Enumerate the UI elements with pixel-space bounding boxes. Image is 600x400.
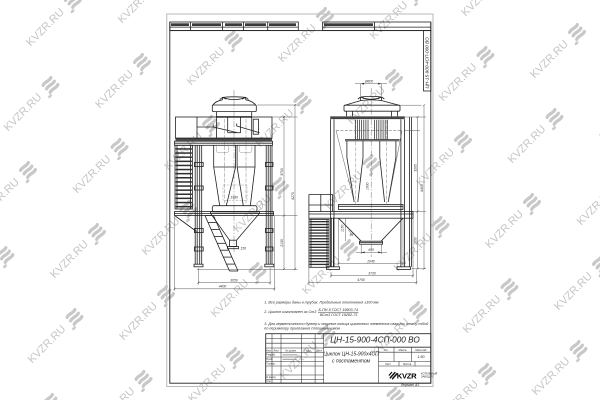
svg-text:Масса: Масса <box>399 348 407 352</box>
svg-text:Ø600: Ø600 <box>364 79 373 83</box>
svg-text:1. Все размеры даны в трубах.: 1. Все размеры даны в трубах. Предельные… <box>264 301 379 305</box>
svg-text:Б-ПН-5 ГОСТ 19903-74: Б-ПН-5 ГОСТ 19903-74 <box>319 308 358 312</box>
svg-text:3265: 3265 <box>414 164 418 172</box>
svg-text:4400: 4400 <box>219 285 227 289</box>
svg-text:Н.контр.: Н.контр. <box>266 375 276 379</box>
svg-text:ЦН-15-900-4СП-000 ВО: ЦН-15-900-4СП-000 ВО <box>330 336 420 345</box>
svg-text:Дата: Дата <box>316 348 322 352</box>
svg-text:ЦН-15-900-4СП-000 ВО: ЦН-15-900-4СП-000 ВО <box>425 37 430 89</box>
svg-text:1:50: 1:50 <box>418 355 425 359</box>
svg-text:ВСт3 ГОСТ 19282-73: ВСт3 ГОСТ 19282-73 <box>320 313 358 317</box>
svg-text:2040: 2040 <box>366 259 375 263</box>
svg-text:6270: 6270 <box>291 192 295 200</box>
svg-text:3700: 3700 <box>280 168 284 176</box>
svg-text:1150: 1150 <box>340 225 344 232</box>
svg-text:Лит.: Лит. <box>384 348 389 352</box>
svg-text:600: 600 <box>368 248 374 252</box>
svg-text:3050: 3050 <box>230 278 238 282</box>
svg-text:Листов: Листов <box>403 362 412 366</box>
svg-text:Формат А3: Формат А3 <box>401 383 420 387</box>
svg-text:Лист: Лист <box>385 362 391 366</box>
svg-text:55°: 55° <box>350 233 356 237</box>
svg-text:Лист: Лист <box>273 348 279 352</box>
svg-text:Пров.: Пров. <box>266 357 273 361</box>
svg-text:Масштаб: Масштаб <box>415 348 427 352</box>
svg-text:Циклон ЦН-15-900х4СП: Циклон ЦН-15-900х4СП <box>323 351 379 357</box>
svg-text:Утв.: Утв. <box>266 379 271 383</box>
svg-text:по периметру прилегания сплошн: по периметру прилегания сплошным швом <box>264 327 340 331</box>
svg-text:1930: 1930 <box>365 182 369 190</box>
svg-text:с постаментом: с постаментом <box>332 358 371 364</box>
svg-text:1650: 1650 <box>414 237 418 245</box>
svg-text:150: 150 <box>241 247 247 251</box>
svg-text:Изм.: Изм. <box>266 348 272 352</box>
svg-text:Т.контр.: Т.контр. <box>266 361 276 365</box>
svg-text:2135: 2135 <box>280 239 284 248</box>
svg-text:2. Циклон изготовлен из Ст3: 2. Циклон изготовлен из Ст3 <box>263 310 317 314</box>
svg-text:KVZR: KVZR <box>397 371 417 380</box>
svg-text:6400: 6400 <box>420 184 424 192</box>
svg-text:Подп.: Подп. <box>305 348 312 352</box>
svg-text:3730: 3730 <box>368 271 376 275</box>
svg-text:1930: 1930 <box>231 196 239 200</box>
svg-text:№ докум.: № докум. <box>285 349 297 352</box>
svg-text:ЗАВОД.РУ: ЗАВОД.РУ <box>421 374 434 378</box>
svg-text:4760: 4760 <box>357 278 365 282</box>
svg-text:Разраб.: Разраб. <box>266 352 276 356</box>
